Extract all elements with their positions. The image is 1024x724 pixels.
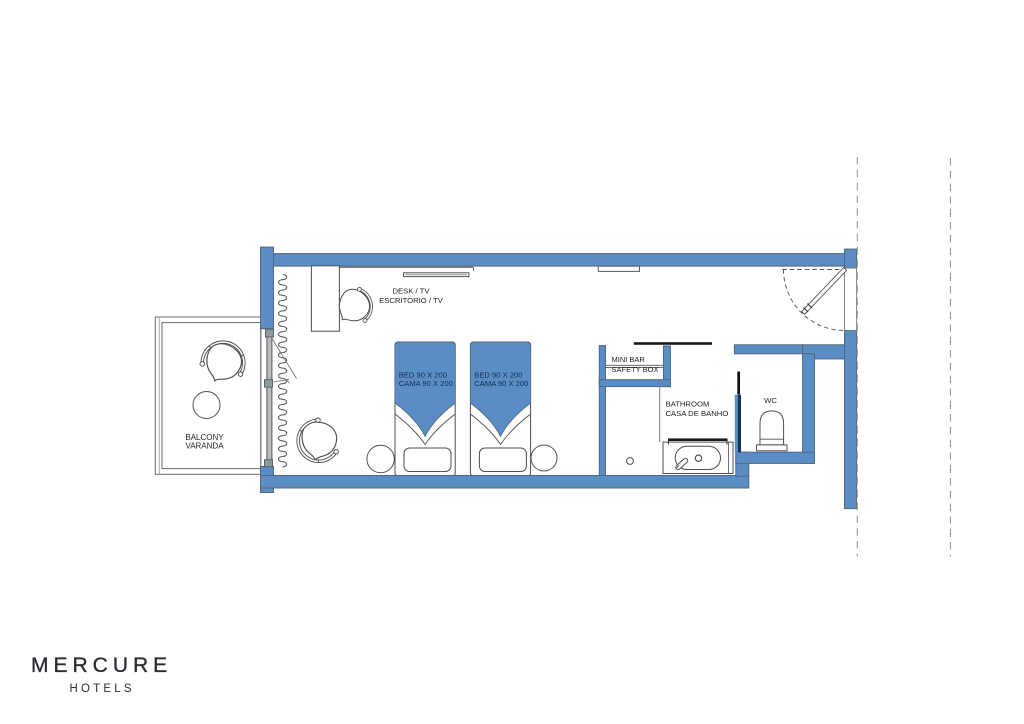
svg-text:CASA DE BANHO: CASA DE BANHO [666, 409, 729, 418]
svg-text:WC: WC [764, 396, 777, 405]
svg-text:VARANDA: VARANDA [185, 441, 224, 450]
svg-text:MINI BAR: MINI BAR [612, 355, 646, 364]
svg-text:SAFETY BOX: SAFETY BOX [612, 365, 659, 374]
svg-text:DESK / TV: DESK / TV [392, 287, 430, 296]
svg-text:CAMA 90 X 200: CAMA 90 X 200 [399, 379, 453, 388]
svg-text:CAMA 90 X 200: CAMA 90 X 200 [474, 379, 528, 388]
svg-text:BATHROOM: BATHROOM [666, 399, 710, 408]
svg-text:ESCRITORIO / TV: ESCRITORIO / TV [379, 296, 444, 305]
